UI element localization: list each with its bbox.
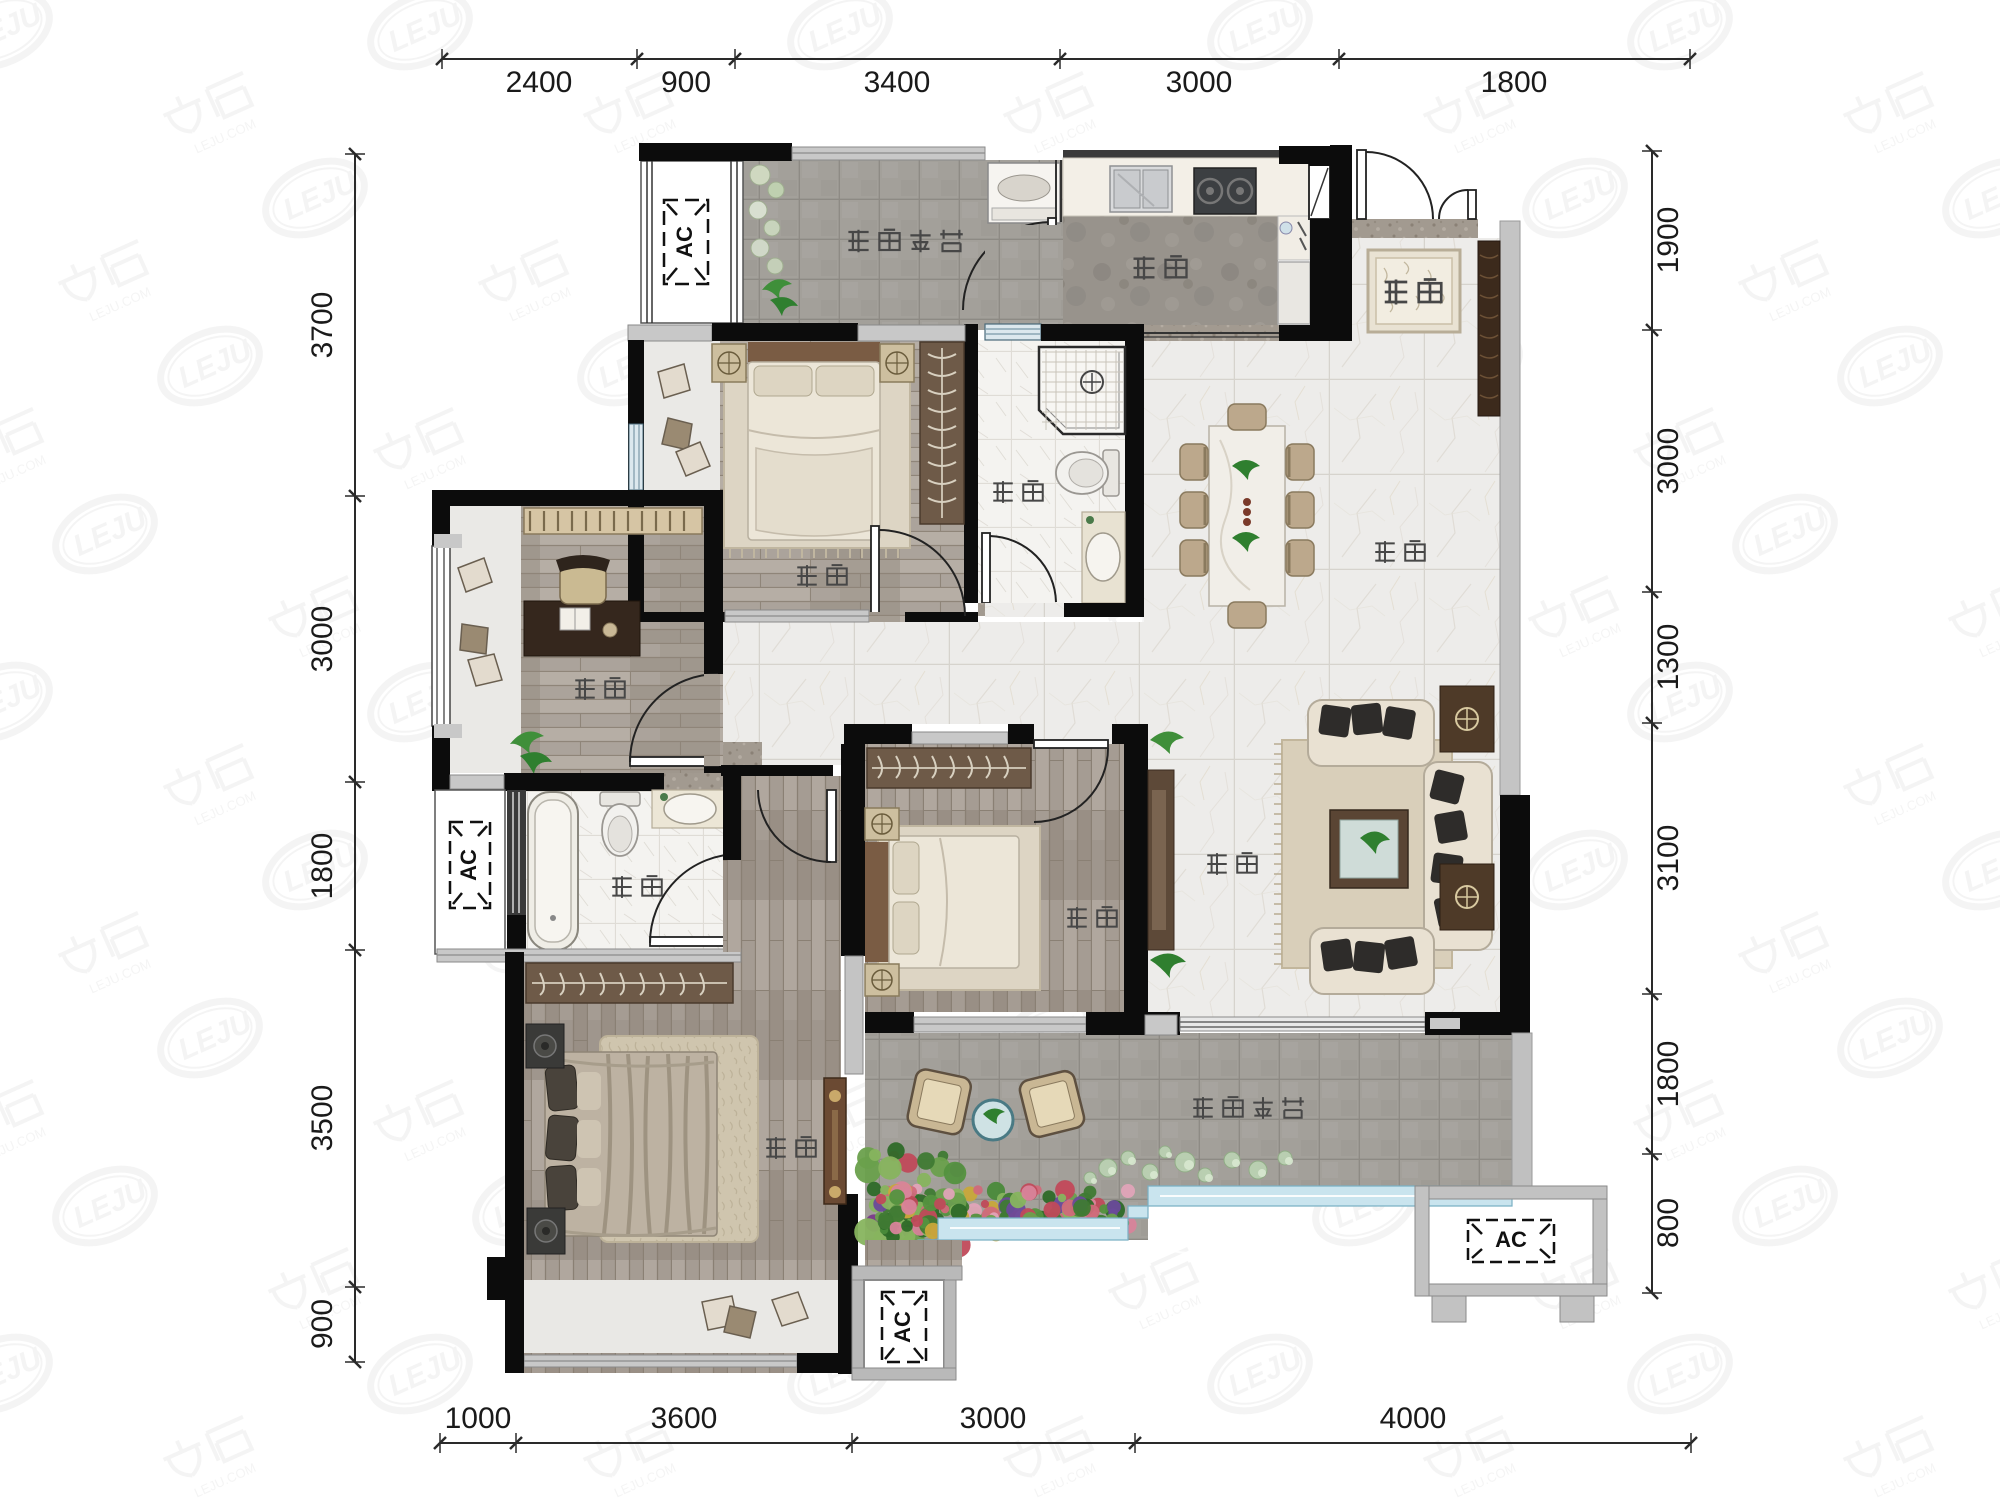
svg-text:AC: AC [1495,1227,1527,1252]
svg-text:3700: 3700 [306,292,339,359]
svg-text:3000: 3000 [306,606,339,673]
svg-text:3000: 3000 [1652,428,1685,495]
svg-text:800: 800 [1652,1198,1685,1248]
svg-text:3400: 3400 [864,66,931,99]
svg-text:1800: 1800 [306,833,339,900]
svg-text:1000: 1000 [445,1402,512,1435]
svg-text:3100: 3100 [1652,825,1685,892]
svg-text:3000: 3000 [1166,66,1233,99]
svg-text:1800: 1800 [1652,1041,1685,1108]
svg-text:1900: 1900 [1652,207,1685,274]
svg-text:3600: 3600 [651,1402,718,1435]
svg-text:900: 900 [661,66,711,99]
svg-text:AC: AC [456,849,481,881]
svg-text:AC: AC [672,226,697,258]
svg-text:2400: 2400 [506,66,573,99]
svg-text:900: 900 [306,1299,339,1349]
svg-text:3000: 3000 [960,1402,1027,1435]
svg-text:1300: 1300 [1652,624,1685,691]
svg-text:1800: 1800 [1481,66,1548,99]
svg-text:3500: 3500 [306,1085,339,1152]
svg-text:4000: 4000 [1380,1402,1447,1435]
svg-text:AC: AC [890,1311,915,1343]
